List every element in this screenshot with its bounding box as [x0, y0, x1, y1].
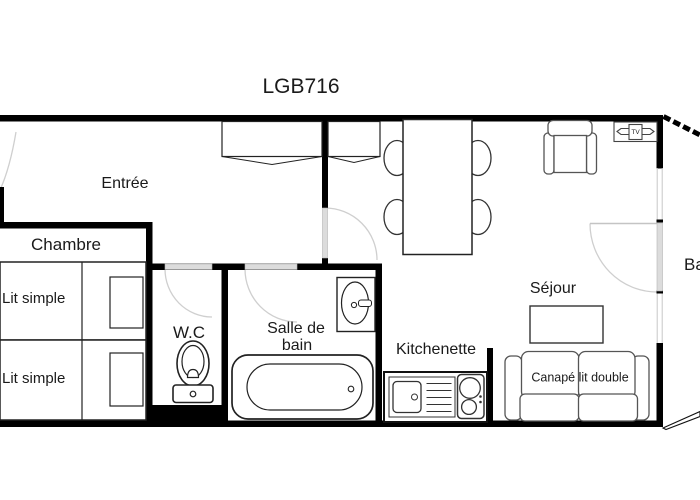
- balcony-railing-bottom: [663, 412, 700, 430]
- window-upper: [657, 168, 662, 220]
- wall-bath-right: [376, 264, 383, 426]
- label-lit-simple-2: Lit simple: [2, 370, 65, 387]
- coffee-table: [530, 306, 603, 343]
- label-kitchenette: Kitchenette: [396, 341, 476, 358]
- wall-tick-2: [657, 220, 664, 223]
- label-salle-de-bain-2: bain: [282, 337, 312, 354]
- sofa-seat-left: [520, 394, 579, 421]
- wall-chambre-right: [146, 222, 153, 425]
- balcony-door-arc: [590, 224, 657, 293]
- sofa-bed: Canapé lit double: [505, 352, 649, 422]
- stove-icon: [458, 375, 485, 419]
- wall-tick-4: [657, 343, 664, 346]
- bath-sink: [337, 278, 375, 332]
- wall-wc-bottom: [146, 405, 228, 422]
- wall-left-stub: [0, 187, 4, 228]
- window-lower: [657, 294, 662, 344]
- label-sejour: Séjour: [530, 280, 577, 297]
- wall-right-lower: [657, 345, 664, 427]
- pillow: [110, 277, 143, 328]
- sejour-door-arc: [325, 208, 377, 260]
- label-entree: Entrée: [101, 175, 148, 192]
- sofa-seat-right: [579, 394, 638, 421]
- plan-title: LGB716: [262, 75, 339, 98]
- label-chambre: Chambre: [31, 235, 101, 254]
- bath-door: [245, 264, 297, 270]
- entry-door-arc: [0, 132, 16, 190]
- sofa-label: Canapé lit double: [531, 371, 628, 385]
- wall-chambre-top: [0, 222, 152, 229]
- dining-set: [384, 120, 491, 255]
- wall-entree-stub: [322, 115, 328, 208]
- floorplan-canvas: LGB716: [0, 0, 700, 500]
- balcony-railing-top: [664, 117, 700, 136]
- label-balcon: Ba: [684, 255, 700, 274]
- wardrobe-right: [328, 122, 380, 163]
- toilet-icon: [173, 341, 213, 403]
- label-lit-simple-1: Lit simple: [2, 290, 65, 307]
- bathtub: [232, 355, 373, 419]
- balcony-door: [657, 223, 663, 291]
- wall-wc-bath: [222, 264, 229, 426]
- wc-door: [165, 264, 212, 270]
- bath-door-arc: [245, 269, 297, 322]
- wall-entree-stub-bottom: [322, 258, 328, 270]
- wardrobe-left: [222, 122, 322, 165]
- armchair: [544, 121, 597, 175]
- wc-door-arc: [165, 269, 212, 317]
- dining-table: [403, 120, 472, 255]
- kitchen-unit: [384, 372, 487, 422]
- tv-unit: TV: [614, 122, 657, 142]
- tv-label: TV: [631, 129, 640, 136]
- pillow: [110, 353, 143, 406]
- label-wc: W.C: [173, 323, 205, 342]
- sejour-door: [323, 208, 328, 258]
- faucet-icon: [359, 300, 372, 307]
- floorplan-page: LGB716: [0, 0, 700, 500]
- label-salle-de-bain-1: Salle de: [267, 320, 325, 337]
